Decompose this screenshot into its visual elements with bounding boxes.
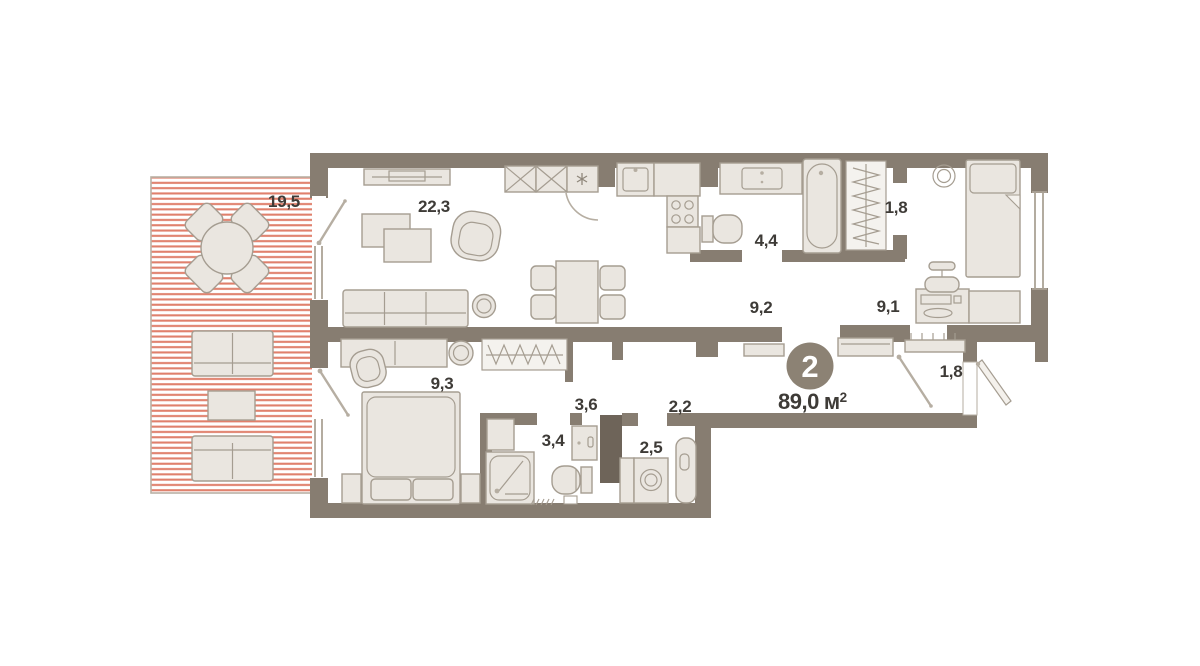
room-label-bathroom: 4,4	[755, 231, 779, 250]
ironing-board	[676, 438, 696, 503]
kitchen-sink-cabinet	[617, 163, 654, 196]
room-label-living: 22,3	[418, 197, 450, 216]
room-label-corridor-inner: 3,6	[575, 395, 598, 414]
round-mirror	[449, 341, 473, 365]
toilet-top	[702, 215, 742, 243]
door-arc	[566, 193, 598, 220]
kitchen-base-cabinet	[667, 227, 700, 253]
desk	[916, 289, 1020, 323]
room-label-hallway: 9,2	[750, 298, 773, 317]
coat-rack	[482, 339, 567, 370]
living-room: 22,3	[343, 166, 625, 327]
laundry: 2,5	[620, 438, 696, 503]
tv-console	[364, 169, 450, 185]
room-label-bedroom-left: 9,3	[431, 374, 454, 393]
washing-machine	[634, 458, 668, 503]
kitchen-counter	[654, 163, 700, 196]
pillow	[371, 479, 411, 500]
hall-console	[838, 338, 893, 356]
hall-shelf	[744, 344, 784, 356]
window-living	[312, 245, 326, 300]
entrance-door	[963, 360, 1011, 415]
floor-plan-svg: 19,5	[0, 0, 1200, 666]
vanity	[720, 163, 802, 194]
bath-cabinet	[487, 419, 514, 450]
terrace-table	[201, 222, 253, 274]
sofa-living	[343, 290, 468, 327]
toilet-icon	[552, 466, 592, 494]
terrace-sofa-top	[192, 331, 273, 376]
dining-table	[556, 261, 598, 323]
window-bedroom-left	[312, 418, 326, 478]
coffee-table-2	[384, 229, 431, 262]
bed-double	[362, 392, 460, 504]
nightstand-right	[461, 474, 480, 503]
terrace: 19,5	[151, 177, 319, 493]
badge-rooms-count: 2	[801, 349, 818, 384]
bed-single	[966, 160, 1020, 277]
room-label-shower-room: 3,4	[542, 431, 566, 450]
laundry-cabinet	[620, 458, 634, 503]
wardrobe-unit	[505, 166, 598, 220]
pouf	[473, 295, 496, 318]
nightstand-left	[342, 474, 361, 503]
floor-plan-page: 19,5	[0, 0, 1200, 666]
window-bedroom-right	[1032, 192, 1047, 289]
stove	[667, 196, 698, 227]
armchair-living	[448, 208, 504, 264]
terrace-sofa-bottom	[192, 436, 273, 481]
shower-room: 3,4	[486, 419, 597, 505]
room-label-bedroom-right: 9,1	[877, 297, 900, 316]
bathtub	[803, 159, 841, 253]
room-label-laundry: 2,5	[640, 438, 663, 457]
ceiling-lamp	[933, 165, 955, 187]
kitchen	[617, 163, 700, 253]
wall-vanity	[572, 426, 597, 460]
pocket-door-block	[600, 415, 622, 483]
room-label-terrace: 19,5	[268, 192, 300, 211]
pillow	[413, 479, 453, 500]
entry-inner-door	[897, 355, 933, 408]
balcony-door-living	[312, 196, 347, 245]
terrace-side-table	[208, 391, 255, 420]
bathroom: 4,4	[702, 159, 841, 253]
shower-tray	[486, 452, 534, 504]
room-label-wardrobe-top: 1,8	[885, 198, 908, 217]
total-area: 89,0м2	[778, 389, 847, 414]
room-label-entry: 1,8	[940, 362, 963, 381]
room-label-corridor-link: 2,2	[669, 397, 692, 416]
balcony-door-bedroom	[312, 368, 350, 418]
dining-set	[531, 261, 625, 323]
desk-chair	[925, 262, 959, 292]
plan-badge: 2 89,0м2	[778, 343, 847, 415]
